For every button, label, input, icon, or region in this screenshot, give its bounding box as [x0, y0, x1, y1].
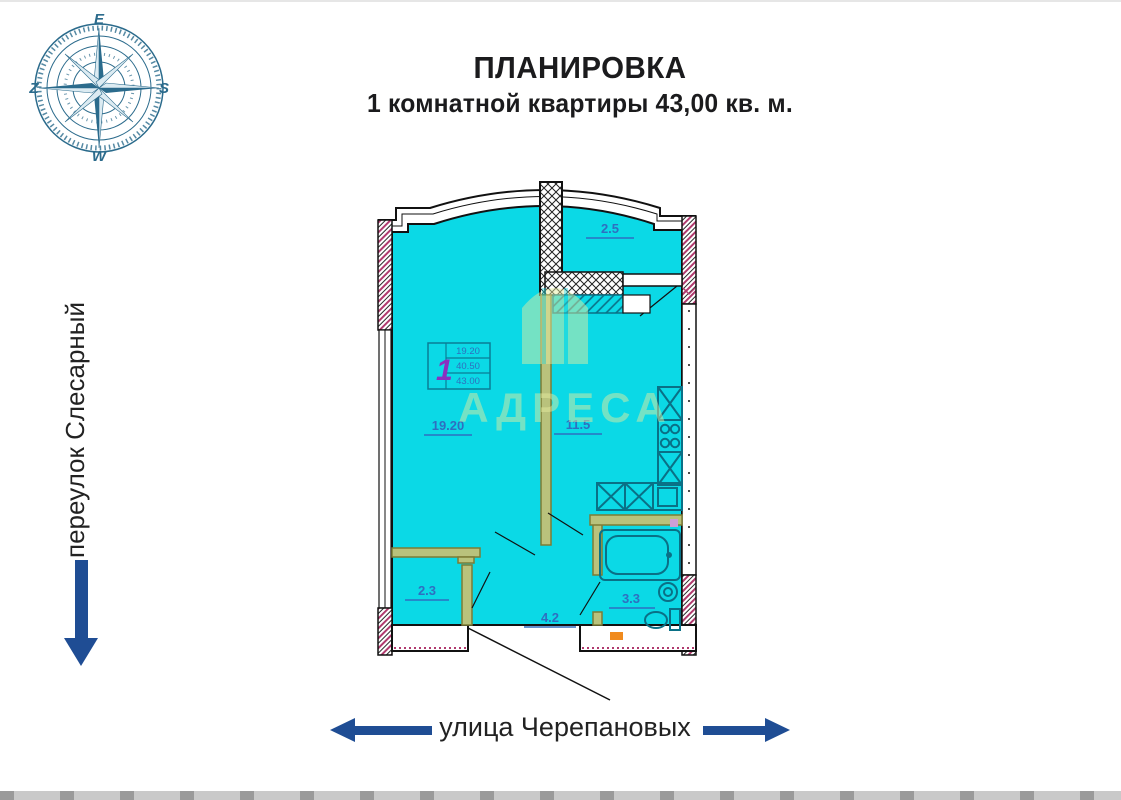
page-title: ПЛАНИРОВКА 1 комнатной квартиры 43,00 кв…: [300, 50, 860, 119]
down-arrow-head-icon: [64, 638, 98, 666]
stamp-area: 40.50: [456, 361, 480, 372]
watermark-text: АДРЕСА: [458, 384, 671, 431]
floor-plan: 1 19.20 40.50 43.00 19.20 11.5 2.5 2.3 4…: [372, 168, 712, 703]
compass-letter-right: S: [159, 80, 169, 97]
compass-letter-left: Z: [28, 80, 39, 97]
street-label-bottom: улица Черепановых: [425, 712, 705, 743]
closet-area-label: 2.3: [418, 583, 436, 598]
hallway-area-label: 4.2: [541, 610, 559, 625]
right-arrow-head-icon: [765, 718, 790, 742]
left-arrow-icon: [352, 726, 432, 735]
right-arrow-icon: [703, 726, 767, 735]
bathroom-area-label: 3.3: [622, 591, 640, 606]
top-border-line: [0, 0, 1121, 2]
balcony-area-label: 2.5: [601, 221, 619, 236]
accent-orange-mark: [610, 632, 623, 640]
street-label-left: переулок Слесарный: [60, 280, 104, 580]
bottom-border-bar: [0, 791, 1121, 800]
watermark-logo-icon: [522, 288, 588, 364]
stamp-room-count: 1: [436, 354, 453, 387]
title-line2: 1 комнатной квартиры 43,00 кв. м.: [314, 88, 846, 119]
right-wall: [682, 216, 696, 655]
accent-pink-mark: [670, 519, 678, 527]
compass-rose-icon: E S W Z: [28, 10, 170, 162]
left-wall: [378, 220, 392, 655]
compass-letter-bottom: W: [92, 148, 108, 162]
title-line1: ПЛАНИРОВКА: [314, 50, 846, 86]
stamp-living-area: 19.20: [456, 346, 480, 357]
bottom-wall: [392, 625, 696, 700]
compass-letter-top: E: [94, 11, 105, 28]
page: E S W Z ПЛАНИРОВКА 1 комнатной квартиры …: [0, 0, 1121, 800]
down-arrow-icon: [75, 560, 88, 640]
